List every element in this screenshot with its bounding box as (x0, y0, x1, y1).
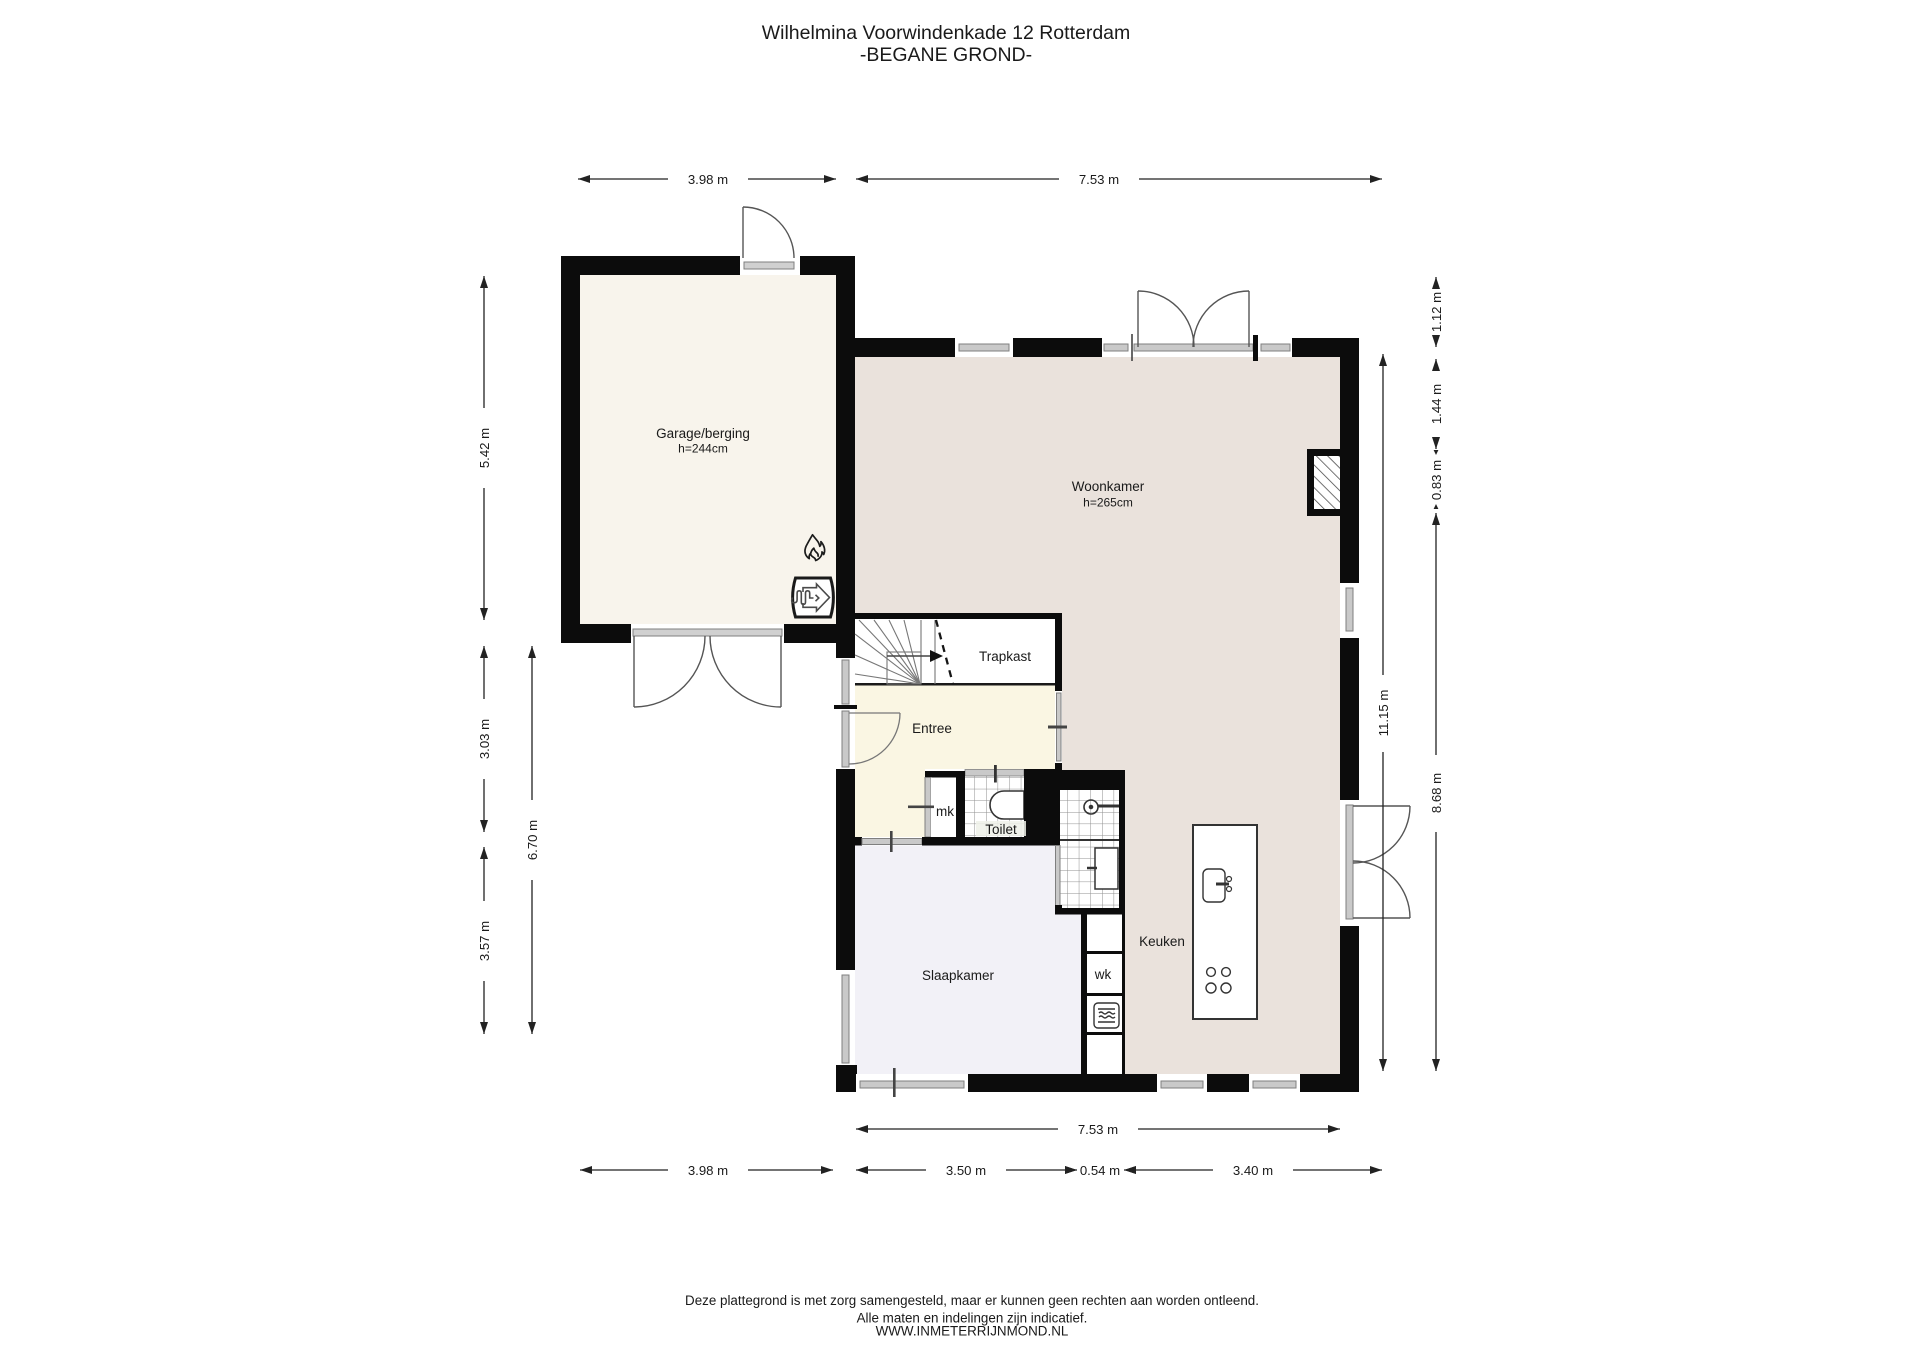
svg-text:11.15 m: 11.15 m (1376, 690, 1391, 737)
svg-text:3.98 m: 3.98 m (688, 1163, 728, 1178)
svg-text:0.83 m: 0.83 m (1429, 460, 1444, 500)
svg-text:5.42 m: 5.42 m (477, 428, 492, 468)
svg-text:3.57 m: 3.57 m (477, 921, 492, 961)
svg-text:1.12 m: 1.12 m (1429, 292, 1444, 332)
svg-text:7.53 m: 7.53 m (1078, 1122, 1118, 1137)
svg-text:3.03 m: 3.03 m (477, 719, 492, 759)
svg-text:3.98 m: 3.98 m (688, 172, 728, 187)
svg-text:mk: mk (936, 804, 954, 819)
svg-text:Woonkamer: Woonkamer (1072, 479, 1145, 494)
svg-text:WWW.INMETERRIJNMOND.NL: WWW.INMETERRIJNMOND.NL (876, 1324, 1069, 1339)
svg-text:Keuken: Keuken (1139, 934, 1185, 949)
svg-text:h=244cm: h=244cm (678, 442, 728, 456)
svg-text:7.53 m: 7.53 m (1079, 172, 1119, 187)
svg-text:-BEGANE GROND-: -BEGANE GROND- (860, 44, 1032, 66)
svg-text:0.54 m: 0.54 m (1080, 1163, 1120, 1178)
svg-text:Toilet: Toilet (985, 822, 1017, 837)
svg-text:3.40 m: 3.40 m (1233, 1163, 1273, 1178)
svg-text:6.70 m: 6.70 m (525, 820, 540, 860)
svg-text:h=265cm: h=265cm (1083, 496, 1133, 510)
svg-text:3.50 m: 3.50 m (946, 1163, 986, 1178)
svg-text:Trapkast: Trapkast (979, 649, 1031, 664)
svg-text:Entree: Entree (912, 721, 952, 736)
svg-text:Wilhelmina Voorwindenkade 12 R: Wilhelmina Voorwindenkade 12 Rotterdam (762, 22, 1131, 44)
svg-text:8.68 m: 8.68 m (1429, 773, 1444, 813)
svg-text:wk: wk (1094, 967, 1112, 982)
svg-text:Garage/berging: Garage/berging (656, 426, 750, 441)
svg-text:1.44 m: 1.44 m (1429, 384, 1444, 424)
svg-text:Slaapkamer: Slaapkamer (922, 968, 995, 983)
svg-text:Deze plattegrond is met zorg s: Deze plattegrond is met zorg samengestel… (685, 1293, 1259, 1308)
